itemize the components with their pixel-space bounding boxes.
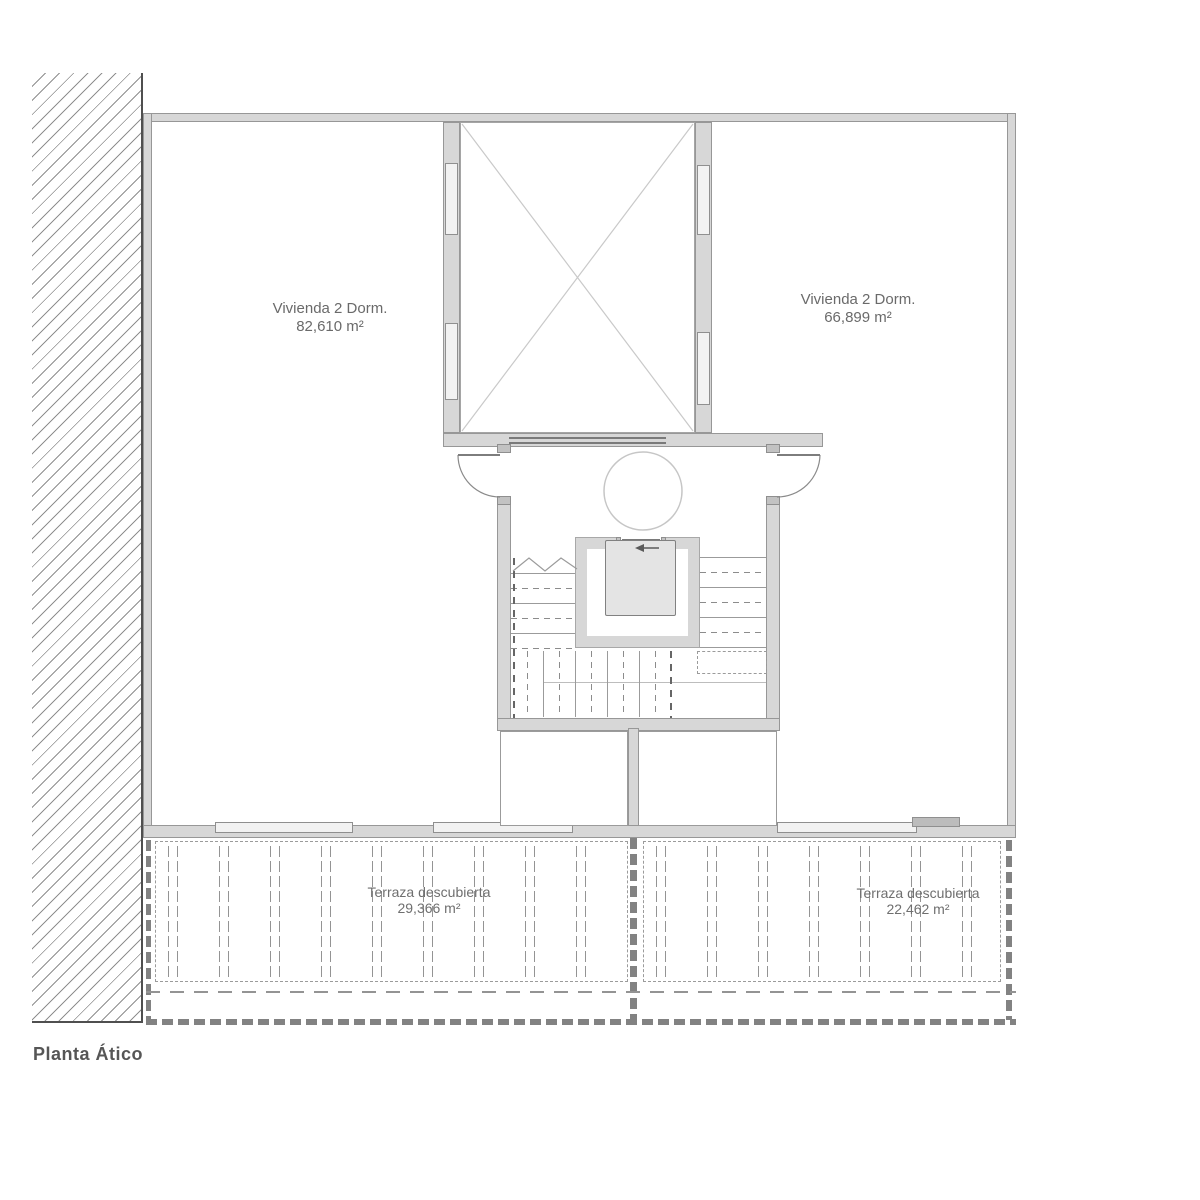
door-swing-right: [777, 455, 820, 497]
terrace-left-area: 29,366 m²: [368, 900, 491, 916]
door-swing-left: [458, 455, 500, 497]
terrace-right-name: Terraza descubierta: [857, 885, 980, 901]
apartment-right-area: 66,899 m²: [801, 309, 916, 327]
apartment-right-label: Vivienda 2 Dorm. 66,899 m²: [801, 291, 916, 327]
elevator-direction-arrow-icon: [635, 544, 659, 552]
floor-plan-canvas: Vivienda 2 Dorm. 82,610 m² Vivienda 2 Do…: [0, 0, 1200, 1200]
stair-direction-zigzag: [513, 558, 577, 571]
skylight-circle: [604, 452, 682, 530]
linework-overlay: [0, 0, 1200, 1200]
terrace-right-area: 22,462 m²: [857, 901, 980, 917]
apartment-left-area: 82,610 m²: [273, 318, 388, 336]
apartment-left-label: Vivienda 2 Dorm. 82,610 m²: [273, 300, 388, 336]
terrace-left-name: Terraza descubierta: [368, 884, 491, 900]
terrace-right-label: Terraza descubierta 22,462 m²: [857, 885, 980, 917]
apartment-left-name: Vivienda 2 Dorm.: [273, 300, 388, 318]
apartment-right-name: Vivienda 2 Dorm.: [801, 291, 916, 309]
page-title: Planta Ático: [33, 1044, 143, 1065]
terrace-left-label: Terraza descubierta 29,366 m²: [368, 884, 491, 916]
